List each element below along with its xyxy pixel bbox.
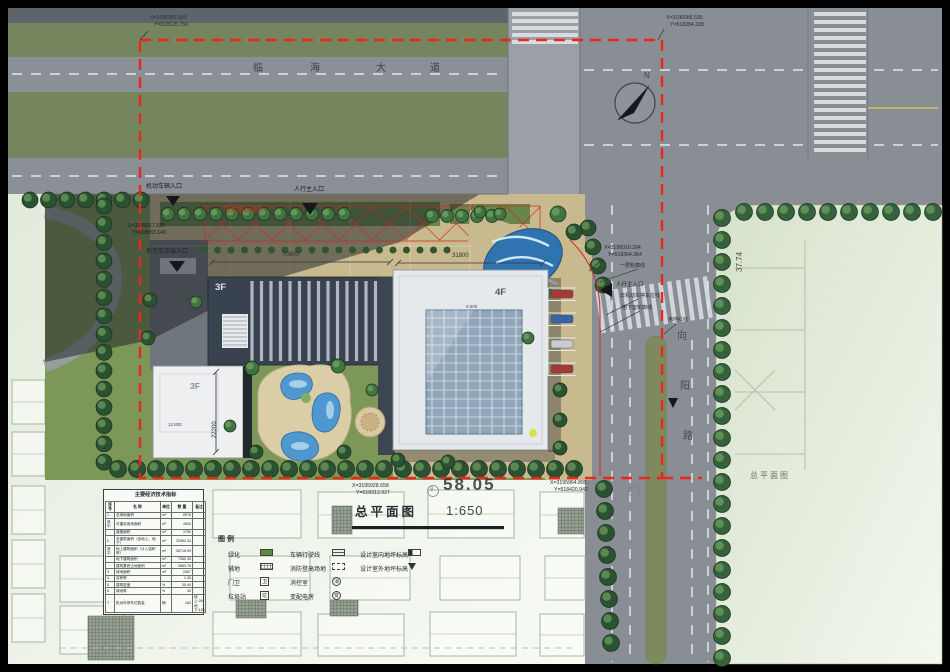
circle-shape <box>149 462 158 471</box>
g-shape <box>110 461 127 478</box>
legend-item-label: 垃圾站 <box>228 592 246 601</box>
circle-shape <box>225 421 231 427</box>
table-cell: m² <box>161 519 172 529</box>
g-shape <box>550 206 566 222</box>
fire-lane-label: 消防登高场地 <box>224 208 263 215</box>
circle-shape <box>715 453 724 462</box>
circle-shape <box>597 482 606 491</box>
circle-shape <box>926 205 935 214</box>
coord-right-y: Y=518364.364 <box>608 253 642 258</box>
g-shape <box>414 461 431 478</box>
circle-shape <box>42 194 50 202</box>
g-shape <box>597 503 614 520</box>
title-underline <box>352 526 504 529</box>
circle-shape <box>377 462 386 471</box>
g-shape <box>714 474 731 491</box>
g-shape <box>338 208 351 221</box>
g-shape <box>96 363 112 379</box>
dim-site-width-label: 58.05 <box>443 476 496 493</box>
side-road-char-3: 路 <box>683 432 693 442</box>
circle-shape <box>98 291 106 299</box>
rect-shape <box>558 508 584 534</box>
g-shape <box>494 208 506 220</box>
g-shape <box>547 461 564 478</box>
g-shape <box>96 399 112 415</box>
circle-shape <box>98 218 106 226</box>
g-shape <box>252 281 385 361</box>
circle-shape <box>361 413 379 431</box>
circle-shape <box>715 497 724 506</box>
circle-shape <box>163 209 170 216</box>
circle-shape <box>98 255 106 263</box>
legend-item-label: 门卫 <box>228 578 240 587</box>
ghost-axis-a: 8 <box>430 487 433 493</box>
circle-shape <box>715 607 724 616</box>
circle-shape <box>244 462 253 471</box>
g-shape <box>96 436 112 452</box>
rect-shape <box>814 132 866 136</box>
outline-floor1-label: 一层轮廓线 <box>620 264 645 269</box>
table-header-cell: 备注 <box>193 501 206 512</box>
legend-item-label: 铺地 <box>228 564 240 573</box>
rect-shape <box>814 76 866 80</box>
circle-shape <box>393 455 400 462</box>
g-shape <box>41 192 57 208</box>
g-shape <box>553 441 567 455</box>
legend: 图例绿化铺地门卫卫垃圾站垃车辆行驶线消防登高场地消控室消变配电房变设计室内地坪标… <box>212 534 447 624</box>
circle-shape <box>842 205 851 214</box>
g-shape <box>115 192 131 208</box>
g-shape <box>714 496 731 513</box>
circle-shape <box>195 209 202 216</box>
circle-shape <box>715 387 724 396</box>
table-cell: 机动车停车位数量 <box>115 594 161 613</box>
garage-entrance-label: 地下车库出入口 <box>146 249 188 255</box>
circle-shape <box>275 209 282 216</box>
table-cell: 地上:28地下:135 <box>193 594 206 613</box>
ellipse-shape <box>326 401 334 419</box>
rect-shape <box>814 44 866 48</box>
table-cell: m² <box>161 535 172 545</box>
north-arrow <box>615 83 655 123</box>
circle-shape <box>737 205 746 214</box>
g-shape <box>366 384 378 396</box>
legend-swatch-circle: 消 <box>332 577 341 586</box>
circle-shape <box>715 299 724 308</box>
circle-shape <box>24 194 32 202</box>
dim-right-label: 31800 <box>452 253 469 259</box>
coord-bl-x: X=3195928.658 <box>352 484 389 489</box>
g-shape <box>186 461 203 478</box>
site-plan-sheet: 主要经济技术指标序号名 称单位数 量备注1总用地面积m²8976其中可建设用地面… <box>0 0 950 672</box>
table-cell <box>193 519 206 529</box>
g-shape <box>714 606 731 623</box>
circle-shape <box>403 247 410 254</box>
circle-shape <box>241 247 248 254</box>
g-shape <box>322 208 335 221</box>
circle-shape <box>339 209 346 216</box>
circle-shape <box>187 462 196 471</box>
g-shape <box>262 461 279 478</box>
circle-shape <box>715 365 724 374</box>
circle-shape <box>587 241 595 249</box>
circle-shape <box>475 207 481 213</box>
circle-shape <box>555 385 562 392</box>
g-shape <box>96 308 112 324</box>
g-shape <box>224 461 241 478</box>
circle-shape <box>598 504 607 513</box>
circle-shape <box>98 310 106 318</box>
coord-tl-x: X=3195985.500 <box>150 16 187 21</box>
rect-shape <box>551 315 573 323</box>
circle-shape <box>715 541 724 550</box>
table-cell: 其中 <box>106 546 115 556</box>
table-cell: 2 <box>106 535 115 545</box>
g-shape <box>883 204 900 221</box>
rect-shape <box>814 20 866 24</box>
coord-left-y: Y=518083.143 <box>132 231 166 236</box>
circle-shape <box>225 462 234 471</box>
circle-shape <box>472 462 481 471</box>
legend-item-label: 车辆行驶线 <box>290 550 320 559</box>
legend-item-label: 消控室 <box>290 578 308 587</box>
rect-shape <box>395 450 555 462</box>
circle-shape <box>495 209 501 215</box>
circle-shape <box>135 194 143 202</box>
circle-shape <box>268 247 275 254</box>
circle-shape <box>98 364 106 372</box>
table-cell: 4500 <box>172 519 193 529</box>
g-shape <box>441 455 455 469</box>
g-shape <box>602 613 619 630</box>
g-shape <box>190 296 202 308</box>
circle-shape <box>582 222 590 230</box>
side-road-char-1: 向 <box>677 332 687 342</box>
g-shape <box>580 220 596 236</box>
g-shape <box>300 461 317 478</box>
vehicle-entrance-label: 机动车辆入口 <box>146 184 182 190</box>
table-cell: 32592.34 <box>172 535 193 545</box>
g-shape <box>714 584 731 601</box>
building-annex-3f <box>153 366 252 458</box>
g-shape <box>714 210 731 227</box>
g-shape <box>96 216 112 232</box>
coord-left-x: X=3195917.930 <box>128 224 165 229</box>
g-shape <box>596 481 613 498</box>
rect-shape <box>551 365 573 373</box>
circle-shape <box>301 462 310 471</box>
circle-shape <box>363 247 370 254</box>
circle-shape <box>98 273 106 281</box>
g-shape <box>566 224 582 240</box>
rect-shape <box>576 252 592 480</box>
legend-item-label: 绿化 <box>228 550 240 559</box>
g-shape <box>598 525 615 542</box>
g-shape <box>522 332 534 344</box>
rect-shape <box>814 28 866 32</box>
road-name-char-1: 临 <box>253 64 263 74</box>
rect-shape <box>814 124 866 128</box>
circle-shape <box>143 333 150 340</box>
circle-shape <box>291 209 298 216</box>
circle-shape <box>715 233 724 242</box>
rect-shape <box>153 366 243 458</box>
g-shape <box>210 208 223 221</box>
g-shape <box>426 210 439 223</box>
rect-shape <box>814 36 866 40</box>
circle-shape <box>98 200 106 208</box>
g-shape <box>714 452 731 469</box>
g-shape <box>778 204 795 221</box>
g-shape <box>96 290 112 306</box>
side-road-char-2: 阳 <box>680 382 690 392</box>
rect-shape <box>8 8 508 23</box>
circle-shape <box>592 260 600 268</box>
g-shape <box>862 204 879 221</box>
circle-shape <box>548 462 557 471</box>
rect-shape <box>814 116 866 120</box>
g-shape <box>178 208 191 221</box>
rect-shape <box>814 92 866 96</box>
rect-shape <box>814 84 866 88</box>
circle-shape <box>487 211 494 218</box>
table-cell: 总建筑面积（含地上、地下） <box>115 535 161 545</box>
circle-shape <box>821 205 830 214</box>
circle-shape <box>339 447 346 454</box>
dim-left-label: 70800 <box>282 252 299 258</box>
circle-shape <box>599 526 608 535</box>
rect-shape <box>814 140 866 144</box>
g-shape <box>141 331 155 345</box>
rect-shape <box>814 100 866 104</box>
circle-shape <box>376 247 383 254</box>
rect-shape <box>551 290 573 298</box>
circle-shape <box>309 247 316 254</box>
rect-shape <box>551 340 573 348</box>
circle-shape <box>111 462 120 471</box>
g-shape <box>96 326 112 342</box>
g-shape <box>757 204 774 221</box>
circle-shape <box>282 462 291 471</box>
legend-swatch-line <box>332 549 345 556</box>
circle-shape <box>130 462 139 471</box>
circle-shape <box>715 563 724 572</box>
coord-bl-y: Y=518313.927 <box>356 491 390 496</box>
dim-annex-label: 22200 <box>212 421 218 438</box>
red-line-label: 用地红线 <box>668 318 688 323</box>
indicator-table-title: 主要经济技术指标 <box>106 491 206 501</box>
table-header-cell: 单位 <box>161 501 172 512</box>
tbody-shape: 主要经济技术指标序号名 称单位数 量备注1总用地面积m²8976其中可建设用地面… <box>106 491 206 613</box>
circle-shape <box>442 211 449 218</box>
side-sheet-label: 总平面图 <box>750 472 790 480</box>
g-shape <box>357 461 374 478</box>
road-name-char-4: 道 <box>430 64 440 74</box>
circle-shape <box>758 205 767 214</box>
circle-shape <box>603 614 612 623</box>
tr-shape: 主要经济技术指标 <box>106 491 206 501</box>
circle-shape <box>417 247 424 254</box>
circle-shape <box>98 438 106 446</box>
legend-swatch-hatch <box>260 563 273 570</box>
g-shape <box>338 461 355 478</box>
circle-shape <box>367 385 373 391</box>
circle-shape <box>884 205 893 214</box>
table-header-cell: 数 量 <box>172 501 193 512</box>
circle-shape <box>715 431 724 440</box>
g-shape <box>441 210 454 223</box>
legend-item-label: 变配电房 <box>290 592 314 601</box>
rect-shape <box>814 12 866 16</box>
circle-shape <box>263 462 272 471</box>
g-shape <box>148 461 165 478</box>
circle-shape <box>228 247 235 254</box>
rect-shape <box>814 52 866 56</box>
g-shape <box>925 204 942 221</box>
circle-shape <box>715 475 724 484</box>
circle-shape <box>779 205 788 214</box>
table-cell: 可建设用地面积 <box>115 519 161 529</box>
circle-shape <box>336 247 343 254</box>
g-shape <box>243 461 260 478</box>
circle-shape <box>444 247 451 254</box>
g-shape <box>129 461 146 478</box>
g-shape <box>194 208 207 221</box>
g-shape <box>714 540 731 557</box>
table-cell: 26718.99 <box>172 546 193 556</box>
g-shape <box>714 650 731 667</box>
circle-shape <box>98 383 106 391</box>
circle-shape <box>320 462 329 471</box>
g-shape <box>205 461 222 478</box>
legend-item-label: 设计室内地坪标高 <box>360 550 408 559</box>
circle-shape <box>555 443 562 450</box>
pedestrian-entrance-label: 人行主入口 <box>294 187 324 193</box>
circle-shape <box>98 236 106 244</box>
g-shape <box>319 461 336 478</box>
g-shape <box>96 235 112 251</box>
circle-shape <box>600 548 609 557</box>
table-cell: 7 <box>106 594 115 613</box>
circle-shape <box>145 295 152 302</box>
rect-shape <box>8 92 508 158</box>
g-shape <box>337 445 351 459</box>
g-shape <box>600 569 617 586</box>
road-name-char-3: 大 <box>376 64 386 74</box>
circle-shape <box>390 247 397 254</box>
g-shape <box>736 204 753 221</box>
g-shape <box>714 430 731 447</box>
rect-shape <box>222 314 248 348</box>
table-cell: 其中 <box>106 519 115 529</box>
indicator-table: 主要经济技术指标序号名 称单位数 量备注1总用地面积m²8976其中可建设用地面… <box>103 489 204 615</box>
legend-swatch-elev-in <box>408 549 421 556</box>
road-name-char-2: 海 <box>310 64 320 74</box>
table-cell: 辆 <box>161 594 172 613</box>
g-shape <box>391 453 405 467</box>
legend-swatch-box: 卫 <box>260 577 269 586</box>
rect-shape <box>88 616 134 660</box>
g-shape <box>376 461 393 478</box>
g-shape <box>585 239 601 255</box>
circle-shape <box>211 209 218 216</box>
circle-shape <box>602 592 611 601</box>
tr-shape: 7机动车停车位数量辆163地上:28地下:135 <box>106 594 206 613</box>
tr-shape: 2总建筑面积（含地上、地下）m²32592.34 <box>106 535 206 545</box>
legend-item-label: 消防登高场地 <box>290 564 326 573</box>
table-header-cell: 名 称 <box>115 501 161 512</box>
g-shape <box>603 635 620 652</box>
g-shape <box>456 210 469 223</box>
legend-title: 图例 <box>218 534 236 544</box>
circle-shape <box>255 247 262 254</box>
g-shape <box>714 386 731 403</box>
circle-shape <box>715 343 724 352</box>
sheet-scale: 1:650 <box>446 504 484 517</box>
g-shape <box>249 445 263 459</box>
indicator-table-grid: 主要经济技术指标序号名 称单位数 量备注1总用地面积m²8976其中可建设用地面… <box>105 491 206 613</box>
circle-shape <box>443 457 450 464</box>
g-shape <box>714 298 731 315</box>
coord-br-y: Y=518420.942 <box>554 488 588 493</box>
rect-shape <box>243 366 252 458</box>
g-shape <box>167 461 184 478</box>
table-cell: 地上建筑面积（计入容积率） <box>115 546 161 556</box>
coord-tl-y: Y=518525.759 <box>154 23 188 28</box>
circle-shape <box>179 209 186 216</box>
ellipse-shape <box>289 380 307 388</box>
g-shape <box>143 293 157 307</box>
g-shape <box>96 253 112 269</box>
floors-left-label: 3F <box>215 283 226 293</box>
floors-right-label: 4F <box>495 288 506 298</box>
g-shape <box>162 208 175 221</box>
circle-shape <box>529 429 537 437</box>
circle-shape <box>905 205 914 214</box>
circle-shape <box>715 277 724 286</box>
rect-shape <box>512 26 578 30</box>
elev-annex-label: 12.800 <box>168 423 182 428</box>
circle-shape <box>339 462 348 471</box>
sheet-title: 总平面图 <box>355 506 417 519</box>
g-shape <box>96 381 112 397</box>
g-shape <box>904 204 921 221</box>
circle-shape <box>510 462 519 471</box>
coord-br-x: X=3195964.895 <box>550 481 587 486</box>
circle-shape <box>601 570 610 579</box>
circle-shape <box>430 247 437 254</box>
circle-shape <box>415 462 424 471</box>
g-shape <box>714 254 731 271</box>
g-shape <box>224 420 236 432</box>
g-shape <box>509 461 526 478</box>
g-shape <box>281 461 298 478</box>
circle-shape <box>358 462 367 471</box>
g-shape <box>799 204 816 221</box>
g-shape <box>331 359 345 373</box>
legend-swatch-elev-out <box>408 563 416 570</box>
circle-shape <box>715 255 724 264</box>
circle-shape <box>201 247 208 254</box>
g-shape <box>599 547 616 564</box>
circle-shape <box>98 328 106 336</box>
circle-shape <box>251 447 258 454</box>
circle-shape <box>604 636 613 645</box>
circle-shape <box>427 211 434 218</box>
circle-shape <box>529 462 538 471</box>
circle-shape <box>98 346 106 354</box>
g-shape <box>601 591 618 608</box>
